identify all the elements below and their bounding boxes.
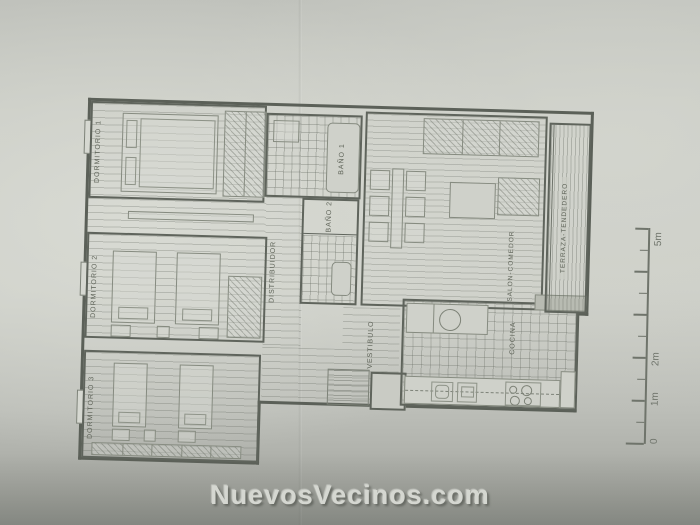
wardrobe-divider <box>223 112 246 197</box>
scale-tick <box>626 443 644 445</box>
beam <box>128 211 254 223</box>
single-bed <box>111 251 157 324</box>
room-dormitorio-3: DORMITORIO 3 <box>81 350 261 463</box>
entry-landing <box>327 369 370 406</box>
sink-basin <box>461 386 474 397</box>
bed-pillow <box>118 412 140 424</box>
room-label-bano-1: BAÑO 1 <box>338 136 346 182</box>
nightstand <box>156 326 169 338</box>
scale-tick <box>636 421 644 423</box>
wardrobe <box>227 276 263 339</box>
nightstand <box>178 430 196 442</box>
zone-between-bedrooms <box>87 198 266 237</box>
scale-tick <box>639 292 647 294</box>
burner <box>510 396 520 406</box>
bano2-label-box: BAÑO 2 <box>303 200 357 235</box>
sink <box>457 382 478 403</box>
photo-background: DORMITORIO 1 DORMITORIO 2 <box>0 0 700 525</box>
bano2-floor <box>302 235 357 303</box>
room-label-dormitorio-1: DORMITORIO 1 <box>94 111 103 191</box>
wardrobe <box>222 111 266 198</box>
bed-pillow <box>182 308 212 321</box>
scale-tick <box>632 400 645 402</box>
scale-label-2m: 2m <box>650 346 662 372</box>
scale-tick <box>640 249 648 251</box>
armchair <box>497 177 540 216</box>
scale-tick <box>633 357 646 359</box>
round-sink <box>439 309 462 332</box>
scale-tick <box>638 335 646 337</box>
counter-corner <box>560 371 576 408</box>
shower <box>273 120 300 143</box>
dining-chair <box>368 222 389 243</box>
room-terraza: TERRAZA-TENDEDERO <box>544 123 591 314</box>
sofa <box>423 118 540 157</box>
nightstand <box>198 327 218 340</box>
dining-chair <box>406 171 427 192</box>
scale-tick <box>633 314 646 316</box>
scale-label-1m: 1m <box>649 386 661 412</box>
scale-label-5m: 5m <box>653 226 665 252</box>
bathtub: BAÑO 1 <box>326 122 361 193</box>
room-label-salon-comedor: SALON-COMEDOR <box>507 234 516 302</box>
burner <box>521 385 532 396</box>
sofa-cushion <box>424 119 464 154</box>
dining-chair <box>405 197 426 218</box>
room-bano-2: BAÑO 2 <box>300 198 360 306</box>
nightstand <box>112 429 130 441</box>
terrace-glazing <box>548 125 554 311</box>
room-label-dormitorio-3: DORMITORIO 3 <box>86 366 95 448</box>
watermark: NuevosVecinos.com <box>210 480 490 511</box>
scale-bar: 5m 2m 1m 0 <box>630 228 671 451</box>
single-bed <box>112 363 148 428</box>
room-label-cocina: COCINA <box>509 316 517 360</box>
nightstand <box>111 325 131 338</box>
dining-chair <box>404 223 425 244</box>
room-label-bano-2: BAÑO 2 <box>326 202 334 232</box>
room-dormitorio-2: DORMITORIO 2 <box>84 232 267 343</box>
room-label-dormitorio-2: DORMITORIO 2 <box>90 246 99 326</box>
table <box>449 182 496 219</box>
dining-chair <box>370 170 391 191</box>
burner <box>509 386 517 394</box>
washing-machine <box>431 381 454 402</box>
double-bed <box>121 113 219 195</box>
single-bed <box>175 252 221 325</box>
scale-tick <box>635 228 648 230</box>
kitchen-counter <box>406 303 489 335</box>
room-bano-1: BAÑO 1 <box>264 113 362 200</box>
counter-divider <box>407 304 435 333</box>
scale-tick <box>637 378 645 380</box>
room-label-terraza: TERRAZA-TENDEDERO <box>559 177 569 279</box>
bed-pillow <box>125 157 137 185</box>
room-cocina: COCINA <box>400 299 579 411</box>
floor-plan: DORMITORIO 1 DORMITORIO 2 <box>76 94 598 478</box>
bed-mattress <box>139 118 216 189</box>
room-dormitorio-1: DORMITORIO 1 <box>88 101 267 203</box>
kitchen-counter <box>404 376 561 408</box>
bed-pillow <box>118 307 148 320</box>
scale-label-0: 0 <box>649 428 661 454</box>
bed-pillow <box>126 120 138 148</box>
sofa-cushion <box>461 120 501 155</box>
bathtub <box>331 262 352 297</box>
nightstand <box>144 429 156 441</box>
dining-chair <box>369 196 390 217</box>
scale-tick <box>634 271 647 273</box>
room-salon-comedor: SALON-COMEDOR <box>360 112 547 311</box>
washer-drum <box>435 385 449 399</box>
burner <box>524 397 532 405</box>
paper-sheet: DORMITORIO 1 DORMITORIO 2 <box>0 0 700 525</box>
single-bed <box>178 364 214 429</box>
bed-pillow <box>184 414 206 426</box>
hob <box>505 382 542 407</box>
dining-table <box>390 168 404 248</box>
